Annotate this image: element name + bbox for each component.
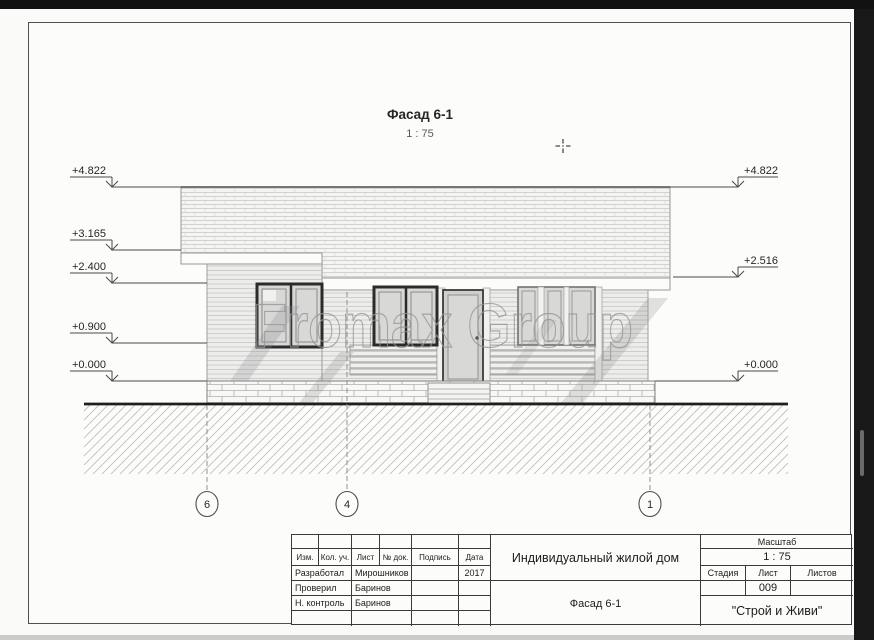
axis-label: 1 <box>647 499 653 511</box>
tb-empty-cell <box>352 535 380 549</box>
tb-sheet-label: Лист <box>746 566 791 581</box>
drawing-scale: 1 : 75 <box>406 128 434 140</box>
tb-empty-cell <box>319 535 352 549</box>
watermark-text: Fromax Group <box>253 292 633 361</box>
tb-col-list: Лист <box>352 549 380 566</box>
tb-col-izm: Изм. <box>292 549 319 566</box>
tb-date <box>459 596 491 611</box>
title-block-scale: Масштаб 1 : 75 Стадия Лист Листов 009 "С… <box>701 535 853 624</box>
level-value: +3.165 <box>72 228 106 240</box>
window-bottom-edge <box>0 635 874 640</box>
tb-scale-label: Масштаб <box>701 535 853 549</box>
tb-empty-cell <box>380 535 412 549</box>
tb-role: Н. контроль <box>292 596 352 611</box>
tb-signature <box>412 581 459 596</box>
window-right-bar <box>854 0 874 640</box>
tb-name: Баринов <box>352 596 412 611</box>
level-value: +2.516 <box>744 255 778 267</box>
tb-col-podpis: Подпись <box>412 549 459 566</box>
tb-empty-cell <box>292 535 319 549</box>
title-block: Изм. Кол. уч. Лист № док. Подпись Дата Р… <box>291 534 852 625</box>
level-value: +0.900 <box>72 321 106 333</box>
entry-steps <box>428 383 490 404</box>
tb-stage-value <box>701 581 746 596</box>
level-value: +2.400 <box>72 261 106 273</box>
tb-role: Разработал <box>292 566 352 581</box>
tb-sheets-value <box>791 581 853 596</box>
ground-hatch <box>84 405 788 474</box>
drawing-title: Фасад 6-1 <box>387 107 454 122</box>
tb-empty-cell <box>412 535 459 549</box>
tb-drawing-name: Фасад 6-1 <box>491 581 701 626</box>
tb-name: Баринов <box>352 581 412 596</box>
tb-company-name: "Строй и Живи" <box>701 596 853 626</box>
tb-project-name: Индивидуальный жилой дом <box>491 535 701 581</box>
scrollbar-thumb[interactable] <box>860 430 864 476</box>
level-value: +0.000 <box>72 359 106 371</box>
tb-empty-cell <box>459 535 491 549</box>
tb-col-koluch: Кол. уч. <box>319 549 352 566</box>
level-value: +4.822 <box>744 165 778 177</box>
tb-empty-cell <box>459 611 491 626</box>
tb-signature <box>412 596 459 611</box>
app-window: Фасад 6-1 1 : 75 <box>0 0 874 640</box>
left-fascia <box>181 253 322 264</box>
axis-label: 4 <box>344 499 350 511</box>
tb-date: 2017 <box>459 566 491 581</box>
tb-empty-cell <box>412 611 459 626</box>
level-value: +0.000 <box>744 359 778 371</box>
tb-sheets-label: Листов <box>791 566 853 581</box>
window-top-bar <box>0 0 874 9</box>
tb-sheet-number: 009 <box>746 581 791 596</box>
tb-empty-cell <box>352 611 412 626</box>
tb-stage-label: Стадия <box>701 566 746 581</box>
elevation-labels-left: +4.822 +3.165 +2.400 +0.900 +0.000 <box>72 165 106 371</box>
tb-empty-cell <box>292 611 352 626</box>
axis-label: 6 <box>204 499 210 511</box>
tb-name: Мирошников <box>352 566 412 581</box>
tb-scale-value: 1 : 75 <box>701 549 853 566</box>
crosshair-cursor <box>556 139 571 153</box>
tb-date <box>459 581 491 596</box>
tb-col-dok: № док. <box>380 549 412 566</box>
title-block-names: Индивидуальный жилой дом Фасад 6-1 <box>491 535 701 624</box>
axis-bubbles: 6 4 1 <box>196 492 661 517</box>
level-value: +4.822 <box>72 165 106 177</box>
title-block-personnel: Изм. Кол. уч. Лист № док. Подпись Дата Р… <box>292 535 491 624</box>
tb-signature <box>412 566 459 581</box>
tb-role: Проверил <box>292 581 352 596</box>
elevation-marks-right <box>655 177 778 381</box>
tb-col-data: Дата <box>459 549 491 566</box>
elevation-labels-right: +4.822 +2.516 +0.000 <box>744 165 778 371</box>
